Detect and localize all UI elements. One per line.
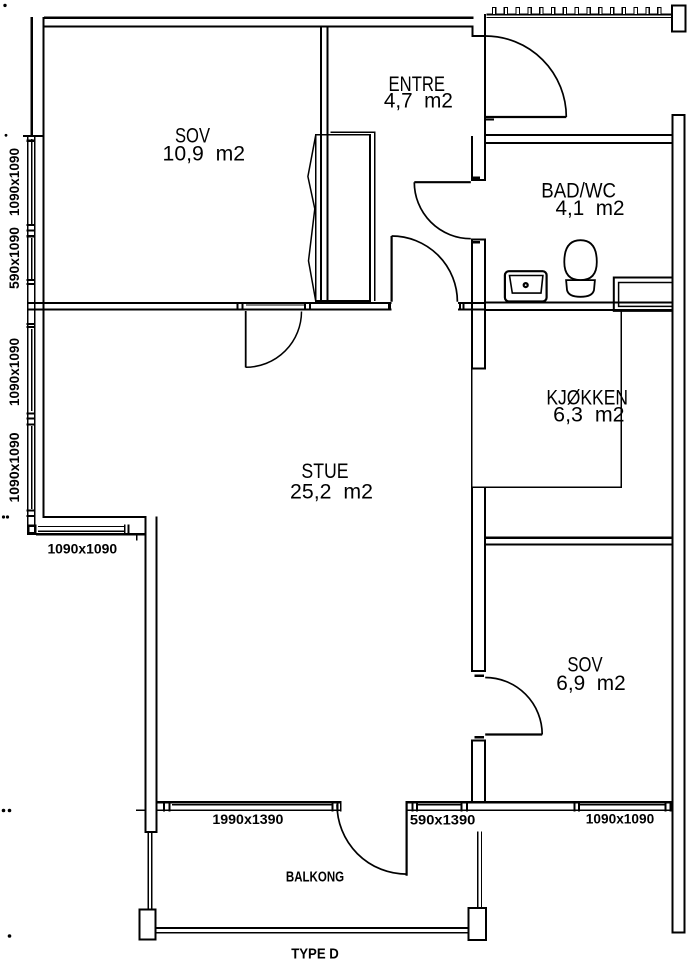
svg-text:590x1390: 590x1390 (410, 812, 476, 828)
svg-text:4,7 m2: 4,7 m2 (384, 90, 453, 113)
svg-text:1090x1090: 1090x1090 (47, 541, 117, 557)
svg-text:10,9 m2: 10,9 m2 (163, 143, 246, 166)
svg-text:4,1 m2: 4,1 m2 (556, 197, 625, 220)
svg-text:BALKONG: BALKONG (286, 870, 344, 886)
svg-text:1090x1090: 1090x1090 (6, 432, 22, 502)
svg-text:1990x1390: 1990x1390 (212, 811, 283, 827)
svg-text:6,3 m2: 6,3 m2 (553, 404, 624, 427)
svg-text:1090x1090: 1090x1090 (586, 811, 655, 827)
svg-text:TYPE D: TYPE D (291, 946, 339, 960)
svg-text:1090x1090: 1090x1090 (6, 148, 22, 216)
svg-text:25,2 m2: 25,2 m2 (290, 481, 373, 504)
svg-text:1090x1090: 1090x1090 (6, 338, 22, 406)
svg-text:590x1090: 590x1090 (6, 227, 22, 289)
svg-text:6,9 m2: 6,9 m2 (556, 672, 625, 695)
